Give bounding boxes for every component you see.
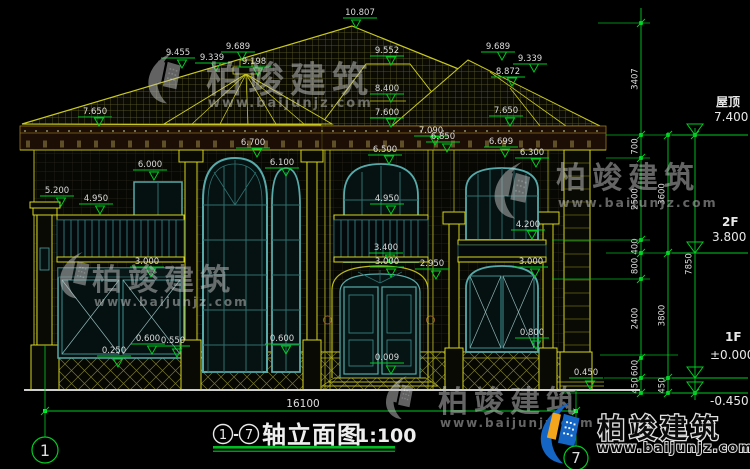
- svg-text:0.450: 0.450: [574, 368, 598, 378]
- chain-dimension-text: 600: [631, 360, 641, 376]
- svg-text:10.807: 10.807: [345, 8, 375, 18]
- level-marker: 屋顶7.400: [672, 95, 748, 135]
- svg-text:3.000: 3.000: [375, 257, 399, 267]
- svg-text:6.699: 6.699: [489, 137, 513, 147]
- chain-dimension-text: 450: [631, 377, 641, 393]
- svg-text:6.500: 6.500: [373, 145, 397, 155]
- chain-dimension-text: 3800: [658, 305, 668, 327]
- chain-dimension-text: 2400: [631, 308, 641, 330]
- svg-text:3.400: 3.400: [374, 243, 398, 253]
- eave-band: [20, 126, 606, 150]
- entrance-balcony-railing: [334, 215, 428, 262]
- svg-text:0.800: 0.800: [520, 328, 544, 338]
- svg-text:0.600: 0.600: [270, 334, 294, 344]
- level-name: 2F: [722, 215, 739, 229]
- title-scale: 1:100: [356, 425, 416, 447]
- level-value: 3.800: [712, 230, 746, 244]
- title-bubble-7: 7: [245, 428, 253, 443]
- dimension-annotation: 10.807: [343, 8, 377, 28]
- level-name: 1F: [725, 330, 742, 344]
- svg-text:6.000: 6.000: [138, 160, 162, 170]
- svg-text:9.689: 9.689: [486, 42, 510, 52]
- level-value: -0.450: [710, 394, 749, 408]
- right-1f-window: [466, 266, 538, 352]
- chain-dimension-text: 7850: [685, 253, 695, 275]
- svg-text:4.950: 4.950: [375, 194, 399, 204]
- watermark-url-text: www.baijunjz.com: [94, 295, 249, 309]
- svg-text:9.339: 9.339: [518, 54, 542, 64]
- chain-dimension-text: 700: [631, 138, 641, 154]
- watermark-brand-text: 柏竣建筑: [556, 161, 700, 196]
- left-balcony-railing: [57, 215, 184, 262]
- cad-elevation-drawing: 10.8079.4559.6899.3399.1989.5528.4007.60…: [0, 0, 750, 469]
- drawing-title: 1 - 7 轴立面图 1:100: [213, 421, 416, 452]
- chain-dimension-text: 3407: [631, 68, 641, 90]
- dimension-arrow-triangle: [530, 64, 539, 72]
- level-value: ±0.000: [710, 348, 750, 362]
- watermark-brand-text: 柏竣建筑: [206, 60, 374, 101]
- svg-text:6.700: 6.700: [241, 138, 265, 148]
- watermark-url-text: www.baijunjz.com: [558, 195, 718, 210]
- svg-text:9.552: 9.552: [375, 46, 399, 56]
- svg-text:0.009: 0.009: [375, 353, 399, 363]
- dimension-arrow-triangle: [498, 52, 507, 60]
- dimension-annotation: 9.689: [481, 42, 515, 60]
- svg-text:0.550: 0.550: [161, 336, 185, 346]
- svg-text:6.850: 6.850: [431, 132, 455, 142]
- svg-text:9.689: 9.689: [226, 42, 250, 52]
- chain-dimension-text: 800: [631, 258, 641, 274]
- level-marker: -0.450: [672, 382, 749, 408]
- overall-dimension-text: 16100: [286, 398, 319, 410]
- elevation-canvas: 10.8079.4559.6899.3399.1989.5528.4007.60…: [0, 0, 750, 469]
- svg-text:5.200: 5.200: [45, 186, 69, 196]
- svg-text:7.600: 7.600: [375, 108, 399, 118]
- svg-text:7.650: 7.650: [83, 107, 107, 117]
- level-name: 屋顶: [716, 95, 740, 109]
- svg-text:0.250: 0.250: [102, 346, 126, 356]
- svg-text:6.300: 6.300: [520, 148, 544, 158]
- svg-text:4.200: 4.200: [516, 220, 540, 230]
- logo-url-text: www.baijunjz.com: [597, 441, 750, 456]
- svg-text:4.950: 4.950: [84, 194, 108, 204]
- svg-text:8.400: 8.400: [375, 84, 399, 94]
- svg-text:8.872: 8.872: [496, 67, 520, 77]
- watermark-url-text: www.baijunjz.com: [208, 96, 373, 111]
- chain-dimension-text: 400: [631, 238, 641, 254]
- svg-text:7: 7: [571, 449, 581, 467]
- svg-text:6.100: 6.100: [270, 158, 294, 168]
- chain-dimension-text: 450: [658, 377, 668, 393]
- svg-text:1: 1: [40, 441, 50, 460]
- level-marker: 2F3.800: [672, 215, 748, 253]
- svg-text:7.650: 7.650: [494, 106, 518, 116]
- title-bubble-1: 1: [219, 428, 227, 443]
- watermark-brand-text: 柏竣建筑: [92, 263, 236, 298]
- grid-bubble-right: 7: [564, 446, 588, 469]
- svg-text:9.455: 9.455: [166, 48, 190, 58]
- svg-text:2.950: 2.950: [420, 259, 444, 269]
- level-markers-layer: 屋顶7.4002F3.8001F±0.000-0.450: [672, 95, 750, 408]
- title-text: 轴立面图: [262, 421, 362, 449]
- level-marker: 1F±0.000: [672, 330, 750, 378]
- title-dash: -: [233, 427, 239, 443]
- grid-bubble-left: 1: [32, 437, 58, 463]
- svg-text:0.600: 0.600: [136, 334, 160, 344]
- svg-text:3.000: 3.000: [519, 257, 543, 267]
- level-value: 7.400: [714, 110, 748, 124]
